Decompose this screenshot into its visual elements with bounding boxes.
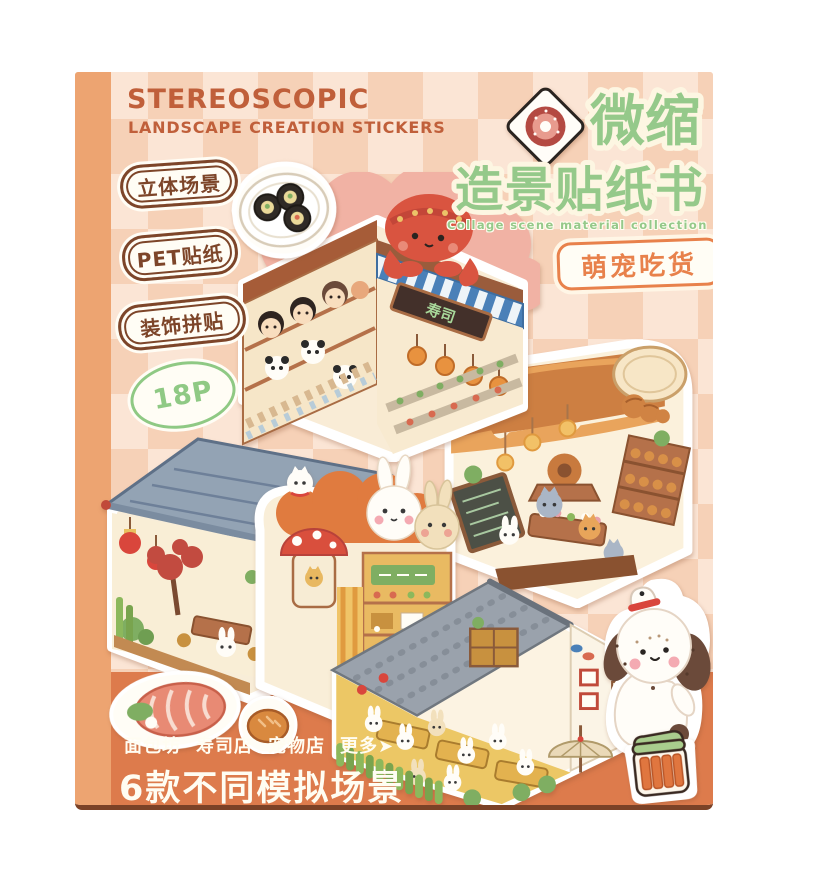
theme-badge: 萌宠吃货 bbox=[556, 237, 713, 291]
category-more: 更多➤ bbox=[340, 732, 394, 758]
feature-badge-3d-scene: 立体场景 bbox=[119, 158, 240, 210]
category-sushi-shop: 寿司店 bbox=[196, 732, 253, 758]
page-count-label: 18P bbox=[151, 374, 216, 415]
theme-badge-label: 萌宠吃货 bbox=[580, 243, 697, 284]
cn-title-line2: 造景贴纸书 bbox=[455, 162, 705, 218]
footer-categories: 面包坊 寿司店 宠物店 更多➤ bbox=[124, 732, 394, 758]
feature-badge-label: 立体场景 bbox=[136, 167, 222, 202]
cn-title-line2-wrap: 造景贴纸书 bbox=[443, 150, 713, 224]
puppy-head bbox=[598, 584, 713, 694]
feature-badge-label: 装饰拼贴 bbox=[139, 304, 226, 342]
snack-jar-sticker bbox=[607, 707, 711, 810]
plant bbox=[464, 466, 482, 484]
white-cat-icon bbox=[287, 466, 313, 496]
donut-icon bbox=[526, 107, 566, 147]
bunny-head-cream bbox=[415, 479, 459, 549]
cn-title-caption: Collage scene material collection book bbox=[447, 218, 713, 232]
english-subtitle: LANDSCAPE CREATION STICKERS bbox=[128, 118, 446, 137]
english-title: STEREOSCOPIC bbox=[127, 84, 369, 115]
sticker-book-cover: 寿司 bbox=[75, 72, 713, 810]
footer-headline: 6款不同模拟场景 bbox=[119, 760, 404, 810]
category-pet-shop: 宠物店 bbox=[268, 732, 325, 758]
cn-title-line1: 微缩 bbox=[589, 89, 700, 153]
cn-title-line1-wrap: 微缩 bbox=[565, 82, 713, 158]
jar-icon bbox=[631, 730, 689, 796]
bread-slice-sign bbox=[614, 347, 686, 401]
sushi-plate-sticker bbox=[226, 153, 344, 267]
plant bbox=[654, 430, 670, 446]
bunny-head-white bbox=[367, 454, 421, 540]
category-bakery: 面包坊 bbox=[124, 732, 181, 758]
feature-badge-label: PET贴纸 bbox=[135, 237, 224, 273]
